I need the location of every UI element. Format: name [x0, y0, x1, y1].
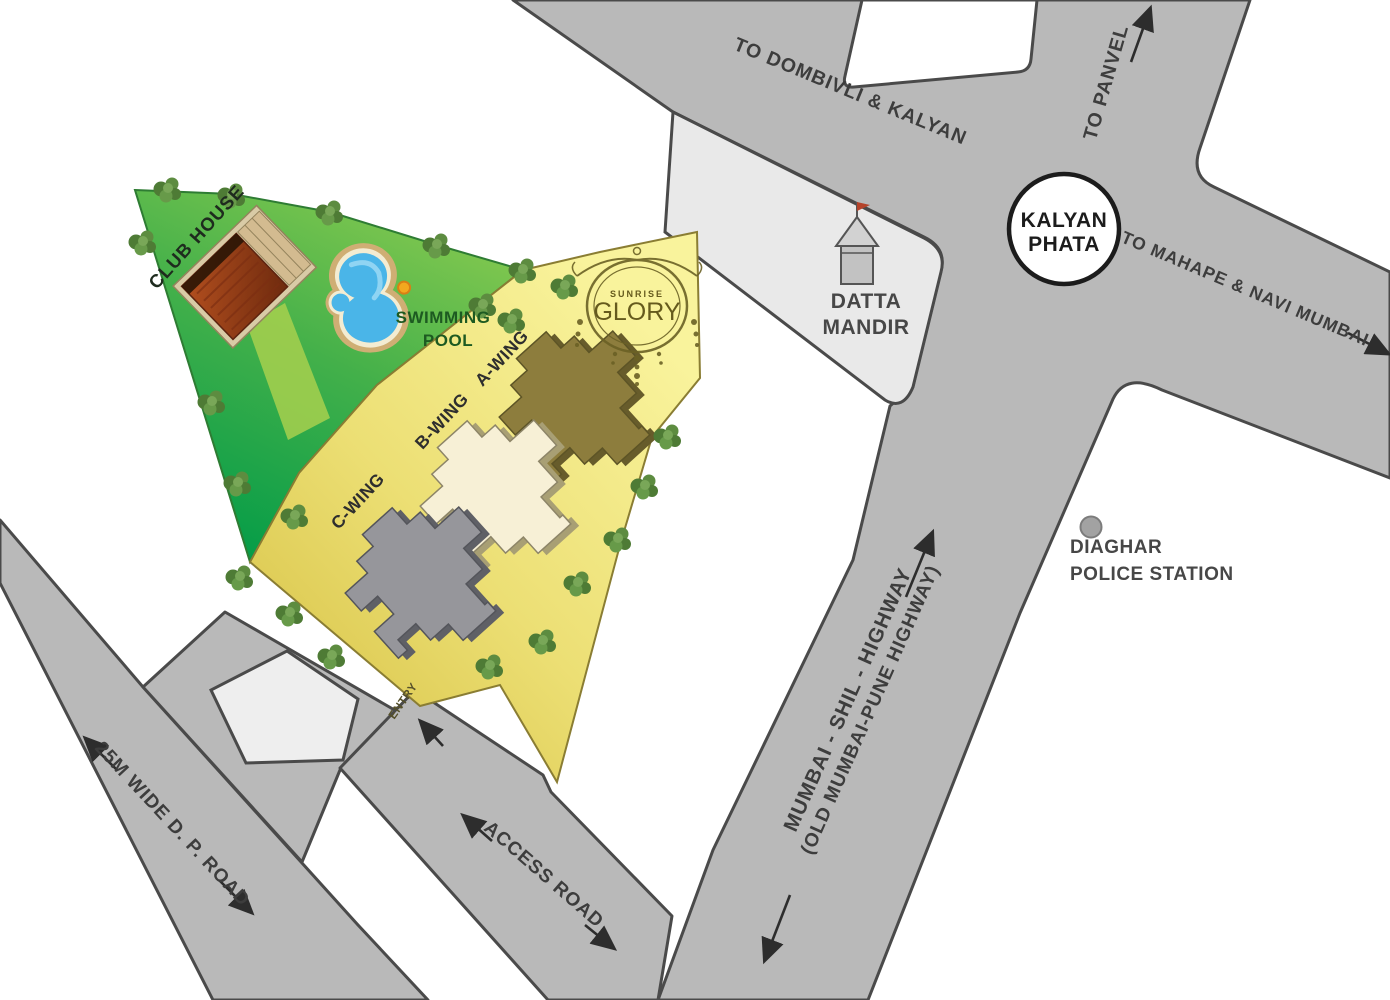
swimming-pool-label-1: SWIMMING [396, 308, 491, 327]
kalyan-phata-label-1: KALYAN [1021, 209, 1108, 232]
police-station-dot-icon [1081, 517, 1102, 538]
pool-float-icon [397, 281, 411, 295]
kalyan-phata-label-2: PHATA [1028, 233, 1100, 256]
datta-mandir-label-1: DATTA [831, 290, 902, 313]
location-map: SUNRISE GLORY KALYAN PHATA TO DOMBIVLI &… [0, 0, 1390, 1000]
swimming-pool-label-2: POOL [423, 331, 473, 350]
highway-road [513, 0, 1390, 1000]
tree-icon [276, 602, 304, 627]
corner-plot [844, 0, 1037, 87]
tree-icon [318, 645, 346, 670]
police-station-label-1: DIAGHAR [1070, 537, 1162, 558]
datta-mandir-label-2: MANDIR [823, 316, 910, 339]
tree-icon [226, 566, 254, 591]
tree-icon [129, 231, 157, 256]
logo-glory-text: GLORY [593, 298, 680, 326]
police-station-label-2: POLICE STATION [1070, 564, 1234, 585]
